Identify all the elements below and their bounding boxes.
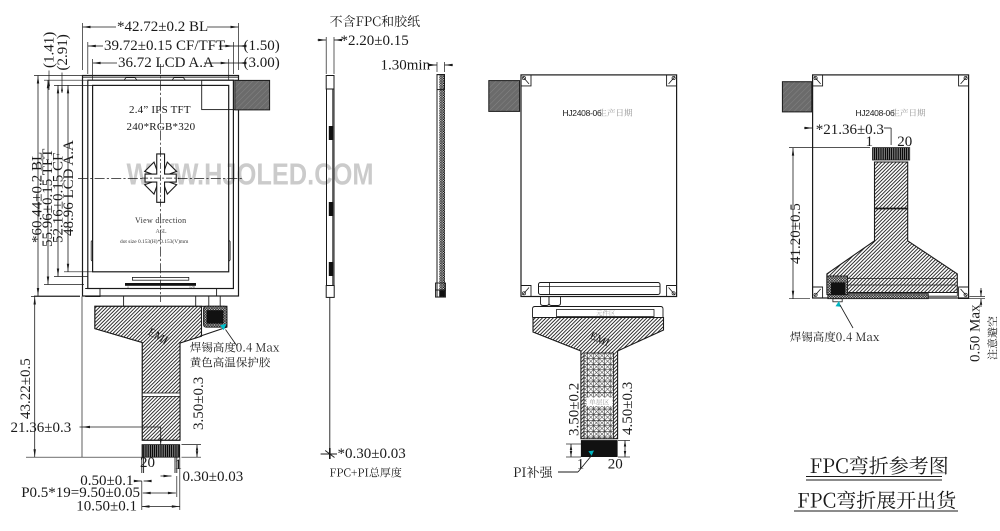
- svg-text:HJ2408-06: HJ2408-06: [856, 108, 895, 118]
- svg-text:1.30min: 1.30min: [381, 58, 431, 74]
- svg-text:4.50±0.3: 4.50±0.3: [620, 382, 636, 435]
- svg-text:1: 1: [175, 457, 183, 473]
- svg-text:*2.20±0.15: *2.20±0.15: [341, 33, 409, 49]
- svg-text:3.50±0.3: 3.50±0.3: [191, 377, 207, 430]
- svg-text:*42.72±0.2 BL: *42.72±0.2 BL: [117, 19, 208, 35]
- svg-text:A6L: A6L: [156, 229, 167, 235]
- svg-text:HJ2408-06: HJ2408-06: [563, 108, 602, 118]
- svg-text:(1.50): (1.50): [244, 38, 280, 54]
- svg-text:2.4” IPS TFT: 2.4” IPS TFT: [129, 104, 191, 116]
- svg-text:0.50 Max: 0.50 Max: [968, 304, 984, 362]
- svg-text:41.20±0.5: 41.20±0.5: [788, 203, 804, 264]
- svg-text:0.30±0.03: 0.30±0.03: [183, 469, 244, 485]
- svg-text:3.50±0.2: 3.50±0.2: [567, 383, 583, 436]
- svg-text:48.96 LCD A.A: 48.96 LCD A.A: [61, 140, 77, 236]
- svg-text:*0.30±0.03: *0.30±0.03: [338, 446, 406, 462]
- svg-text:10.50±0.1: 10.50±0.1: [76, 499, 137, 515]
- svg-text:*21.36±0.3: *21.36±0.3: [816, 122, 884, 138]
- svg-text:240*RGB*320: 240*RGB*320: [127, 121, 196, 133]
- svg-text:36.72 LCD A.A: 36.72 LCD A.A: [118, 55, 214, 71]
- svg-text:20: 20: [897, 134, 912, 150]
- svg-text:20: 20: [140, 455, 155, 471]
- svg-text:21.36±0.3: 21.36±0.3: [11, 420, 72, 436]
- svg-text:20: 20: [608, 457, 623, 473]
- svg-text:1: 1: [577, 457, 585, 473]
- svg-text:View direction: View direction: [135, 216, 186, 225]
- svg-text:(3.00): (3.00): [244, 55, 280, 71]
- svg-text:39.72±0.15 CF/TFT: 39.72±0.15 CF/TFT: [104, 38, 225, 54]
- svg-text:(2.91): (2.91): [55, 34, 71, 70]
- svg-text:43.22±0.5: 43.22±0.5: [18, 358, 34, 419]
- svg-text:dot size 0.153(H)*0.153(V)mm: dot size 0.153(H)*0.153(V)mm: [120, 238, 189, 245]
